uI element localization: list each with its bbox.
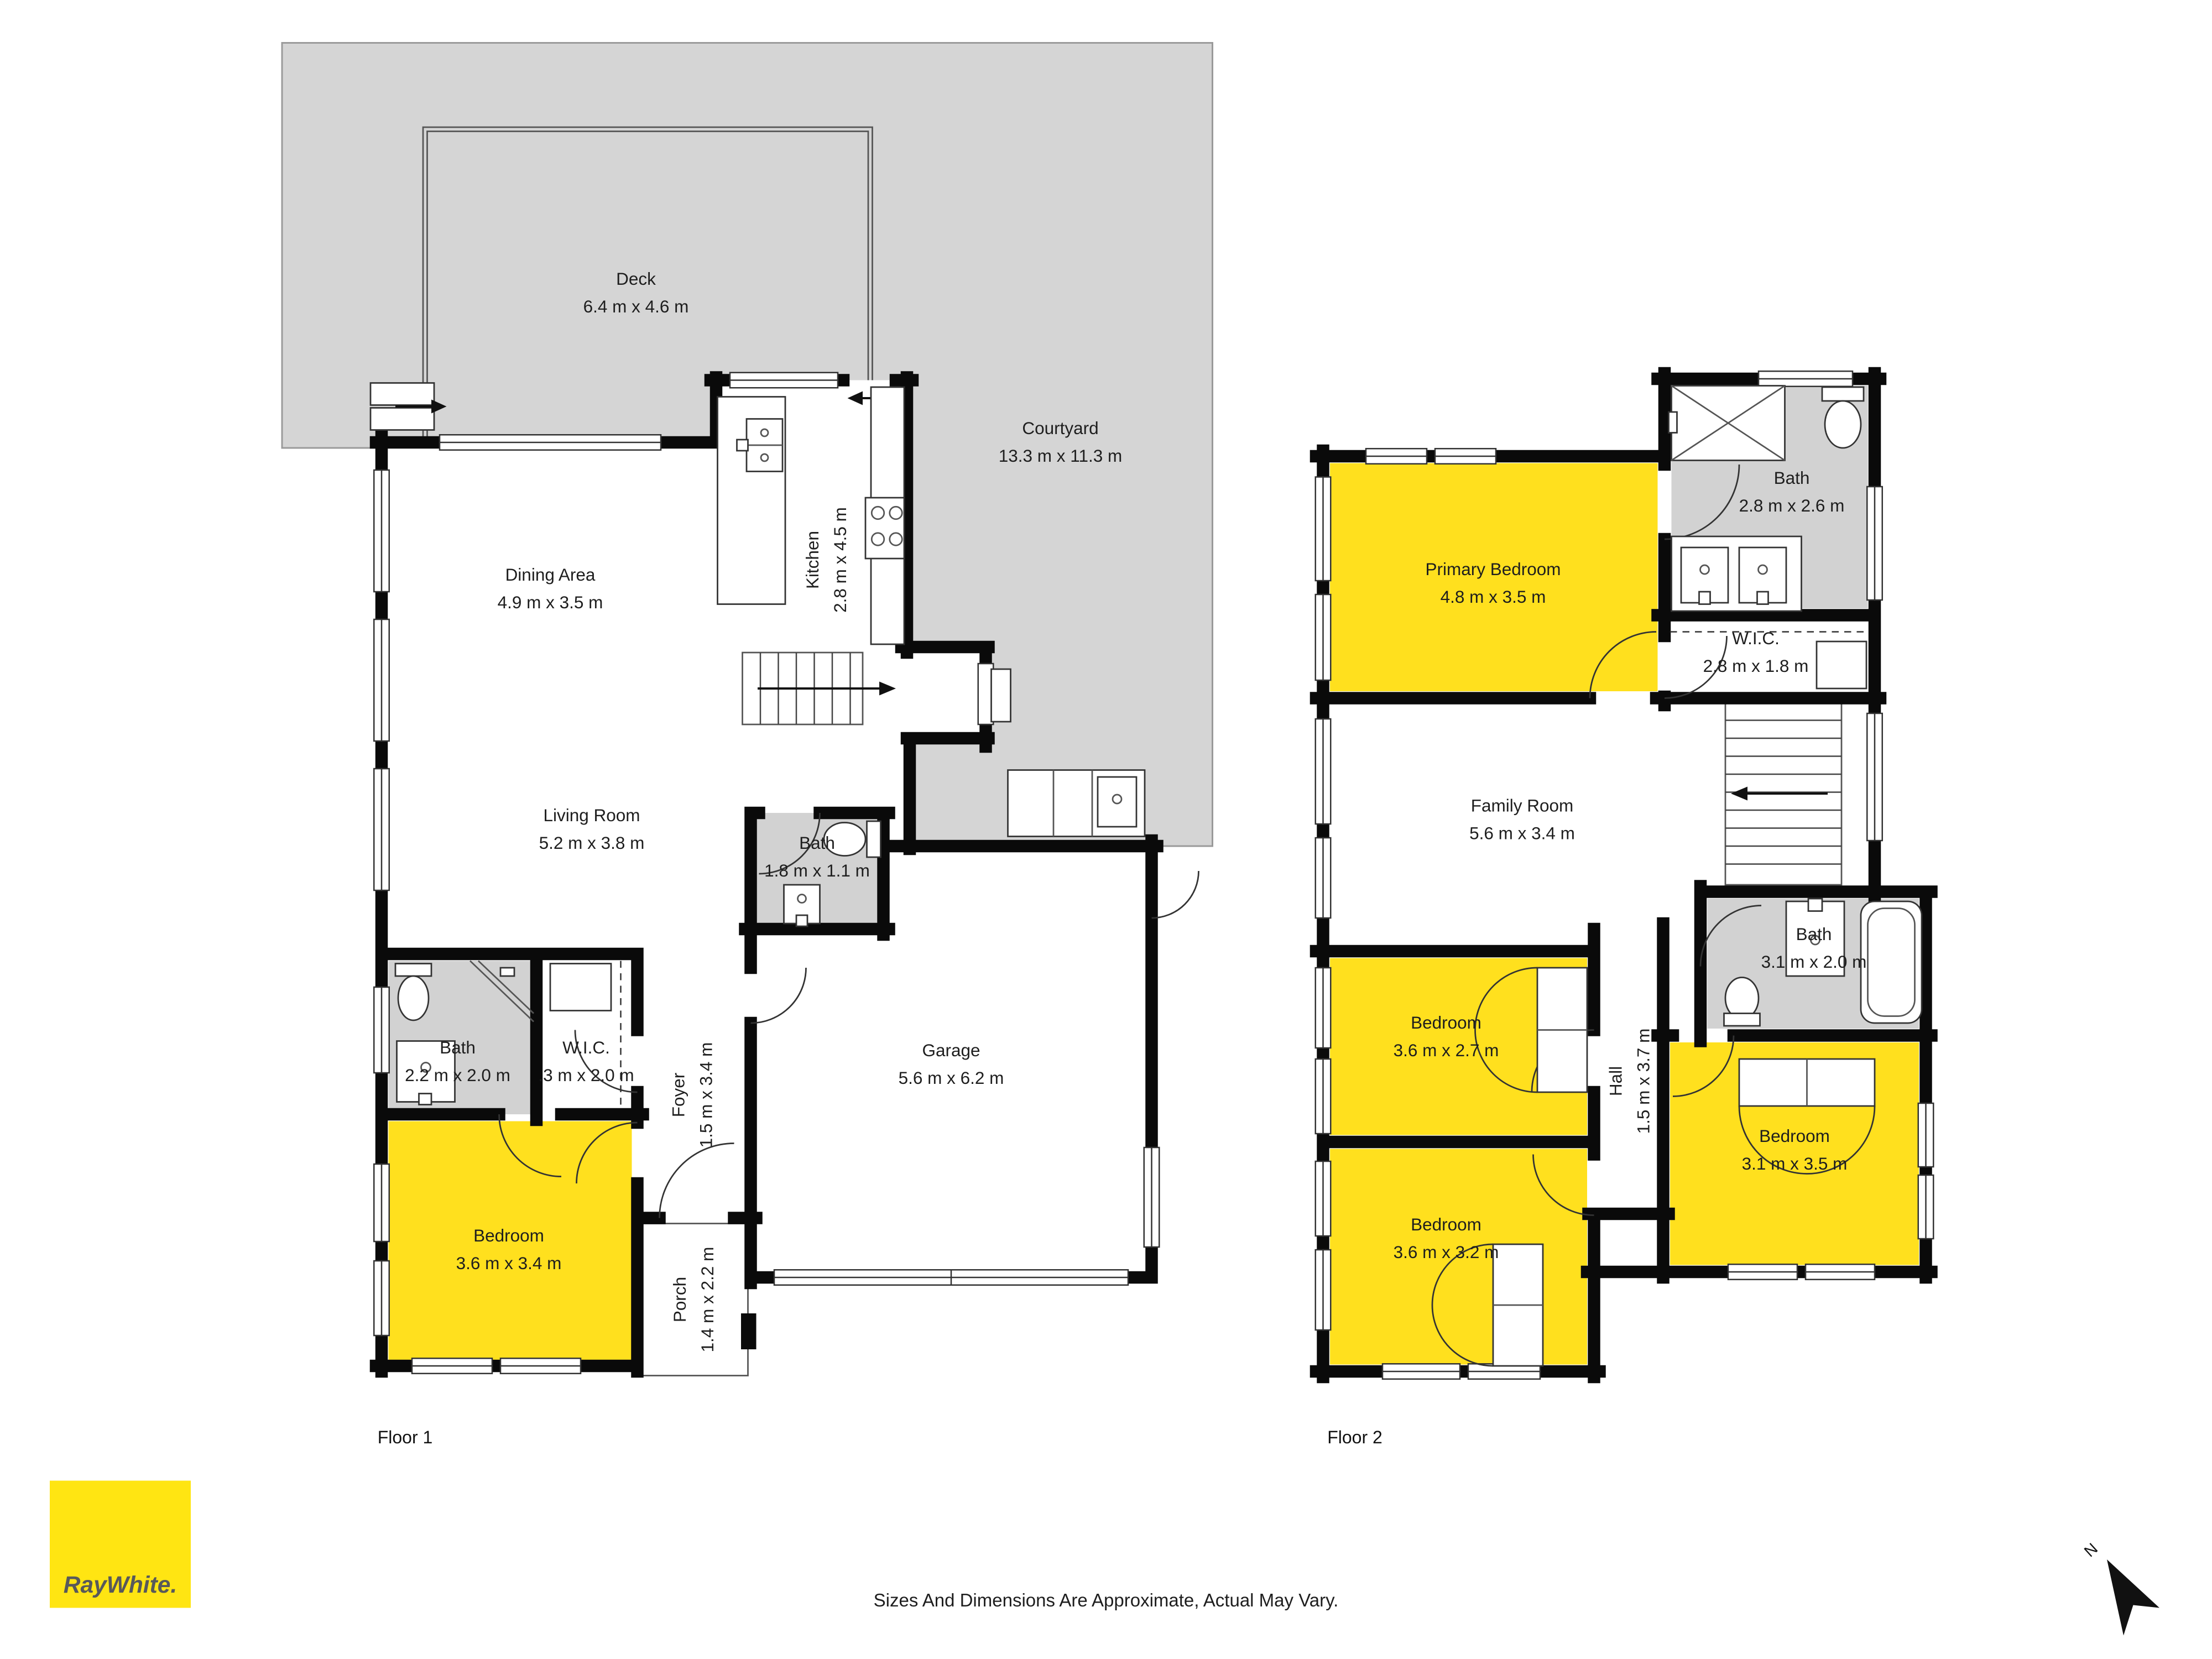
dining-label: Dining Area <box>505 565 596 585</box>
hall-dims: 1.5 m x 3.7 m <box>1634 1029 1653 1134</box>
kitchen-label: Kitchen <box>802 531 822 589</box>
wic-f2-dims: 2.8 m x 1.8 m <box>1703 656 1809 676</box>
floorplan-canvas: Deck 6.4 m x 4.6 m Courtyard 13.3 m x 11… <box>0 0 2212 1659</box>
living-dims: 5.2 m x 3.8 m <box>539 833 645 853</box>
bathtub-icon <box>1861 901 1922 1023</box>
toilet-icon <box>867 821 881 857</box>
bedroom-bottom-label: Bedroom <box>1411 1214 1481 1234</box>
north-label: N <box>2081 1540 2101 1561</box>
foyer-dims: 1.5 m x 3.4 m <box>696 1042 716 1148</box>
north-arrow-icon <box>2107 1559 2159 1636</box>
living-label: Living Room <box>543 805 640 825</box>
foyer-floor <box>638 954 751 1218</box>
wic-f1-dims: .3 m x 2.0 m <box>538 1065 634 1085</box>
floor1-title: Floor 1 <box>378 1427 433 1447</box>
hall-label: Hall <box>1606 1066 1626 1096</box>
family-room-label: Family Room <box>1471 796 1574 816</box>
brand-logo: RayWhite. <box>50 1481 191 1608</box>
family-room-dims: 5.6 m x 3.4 m <box>1469 823 1575 843</box>
porch-step <box>741 1313 757 1349</box>
floor1: Deck 6.4 m x 4.6 m Courtyard 13.3 m x 11… <box>282 43 1213 1448</box>
floor2-title: Floor 2 <box>1327 1427 1383 1447</box>
primary-bedroom-label: Primary Bedroom <box>1425 559 1561 579</box>
shower-head-icon <box>1669 412 1677 433</box>
bath-hall-label: Bath <box>1796 924 1832 944</box>
kitchen-dims: 2.8 m x 4.5 m <box>830 507 850 613</box>
closet-shelf <box>550 964 611 1011</box>
compass: N <box>2081 1540 2159 1635</box>
bedroom-f1-label: Bedroom <box>473 1225 544 1245</box>
dining-dims: 4.9 m x 3.5 m <box>498 592 603 612</box>
wic-f2-label: W.I.C. <box>1732 628 1780 648</box>
bedroom-right-label: Bedroom <box>1759 1126 1830 1146</box>
deck-dims: 6.4 m x 4.6 m <box>583 296 689 316</box>
bedroom-left-dims: 3.6 m x 2.7 m <box>1394 1040 1499 1060</box>
bedroom-bottom-dims: 3.6 m x 3.2 m <box>1394 1242 1499 1262</box>
garage-label: Garage <box>922 1040 980 1060</box>
courtyard-label: Courtyard <box>1022 418 1098 438</box>
shower-head-icon <box>500 968 514 976</box>
bedroom-left-label: Bedroom <box>1411 1013 1481 1032</box>
bath-hall-dims: 3.1 m x 2.0 m <box>1761 952 1867 972</box>
porch-label: Porch <box>670 1277 690 1322</box>
bath-upper-label: Bath <box>799 833 835 853</box>
garage-dims: 5.6 m x 6.2 m <box>899 1068 1004 1088</box>
outdoor-sink-icon <box>1098 777 1136 827</box>
porch-dims: 1.4 m x 2.2 m <box>697 1247 717 1353</box>
disclaimer-text: Sizes And Dimensions Are Approximate, Ac… <box>874 1590 1339 1610</box>
bedroom-f1-dims: 3.6 m x 3.4 m <box>456 1253 562 1273</box>
bedroom-right-dims: 3.1 m x 3.5 m <box>1742 1154 1848 1173</box>
floor2: Primary Bedroom 4.8 m x 3.5 m Bath 2.8 m… <box>1316 371 1934 1447</box>
bath-ensuite-label: Bath <box>1774 468 1810 488</box>
primary-bedroom-dims: 4.8 m x 3.5 m <box>1441 587 1546 607</box>
bath-upper-dims: 1.8 m x 1.1 m <box>764 860 870 880</box>
bath-lower-dims: 2.2 m x 2.0 m <box>405 1065 510 1085</box>
wic-f1-label: W.I.C. <box>562 1037 610 1057</box>
bath-lower-label: Bath <box>440 1037 476 1057</box>
porch-label-group: Porch 1.4 m x 2.2 m <box>670 1247 717 1353</box>
raywhite-logo-text: RayWhite. <box>64 1572 177 1598</box>
courtyard-bench <box>1008 770 1145 837</box>
toilet-icon <box>395 964 431 977</box>
toilet-icon <box>1822 387 1864 401</box>
deck-label: Deck <box>616 269 656 289</box>
closet-shelf <box>1817 641 1866 688</box>
floorplan-page: Deck 6.4 m x 4.6 m Courtyard 13.3 m x 11… <box>0 0 2212 1659</box>
foyer-label: Foyer <box>669 1073 688 1118</box>
bath-ensuite-dims: 2.8 m x 2.6 m <box>1739 495 1845 515</box>
stair-landing-floor <box>907 647 986 738</box>
courtyard-dims: 13.3 m x 11.3 m <box>999 446 1123 466</box>
